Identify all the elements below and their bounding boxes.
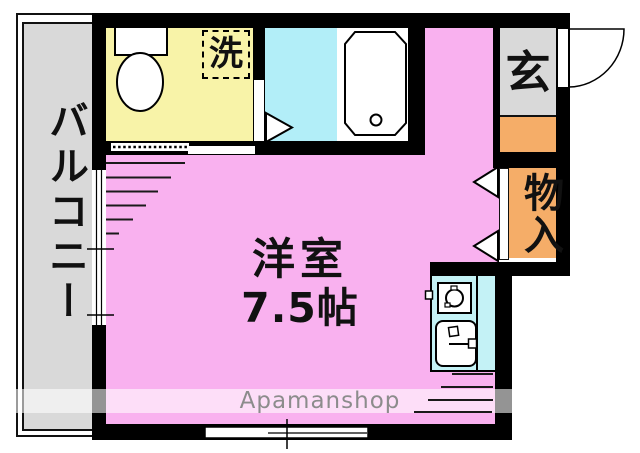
laundry-label: 洗 [209,34,243,74]
ceiling-hatch-lines-right [414,374,493,412]
stove-icon [438,283,471,313]
ceiling-hatch-lines-left [106,163,185,234]
bathroom-door-triangle [266,113,292,142]
room-size-label: 7.5帖 [222,285,378,332]
kitchen-knob-icon [426,291,433,299]
entrance-door-arc [557,28,624,88]
closet-label: 物入 [511,172,569,256]
closet-door-triangle-upper [474,167,498,197]
toilet-icon [115,27,167,111]
closet-door-triangle-lower [474,231,498,261]
bathtub-icon [345,32,406,135]
entrance-label: 玄 [500,36,556,101]
bottom-window [205,419,368,449]
laundry-box: 洗 [202,30,250,79]
room-label-block: 洋室 7.5帖 [222,236,378,332]
sink-icon [436,321,477,366]
floorplan: Apamanshop [0,0,640,453]
balcony-label: バルコニー [36,100,94,325]
room-label: 洋室 [222,236,378,285]
